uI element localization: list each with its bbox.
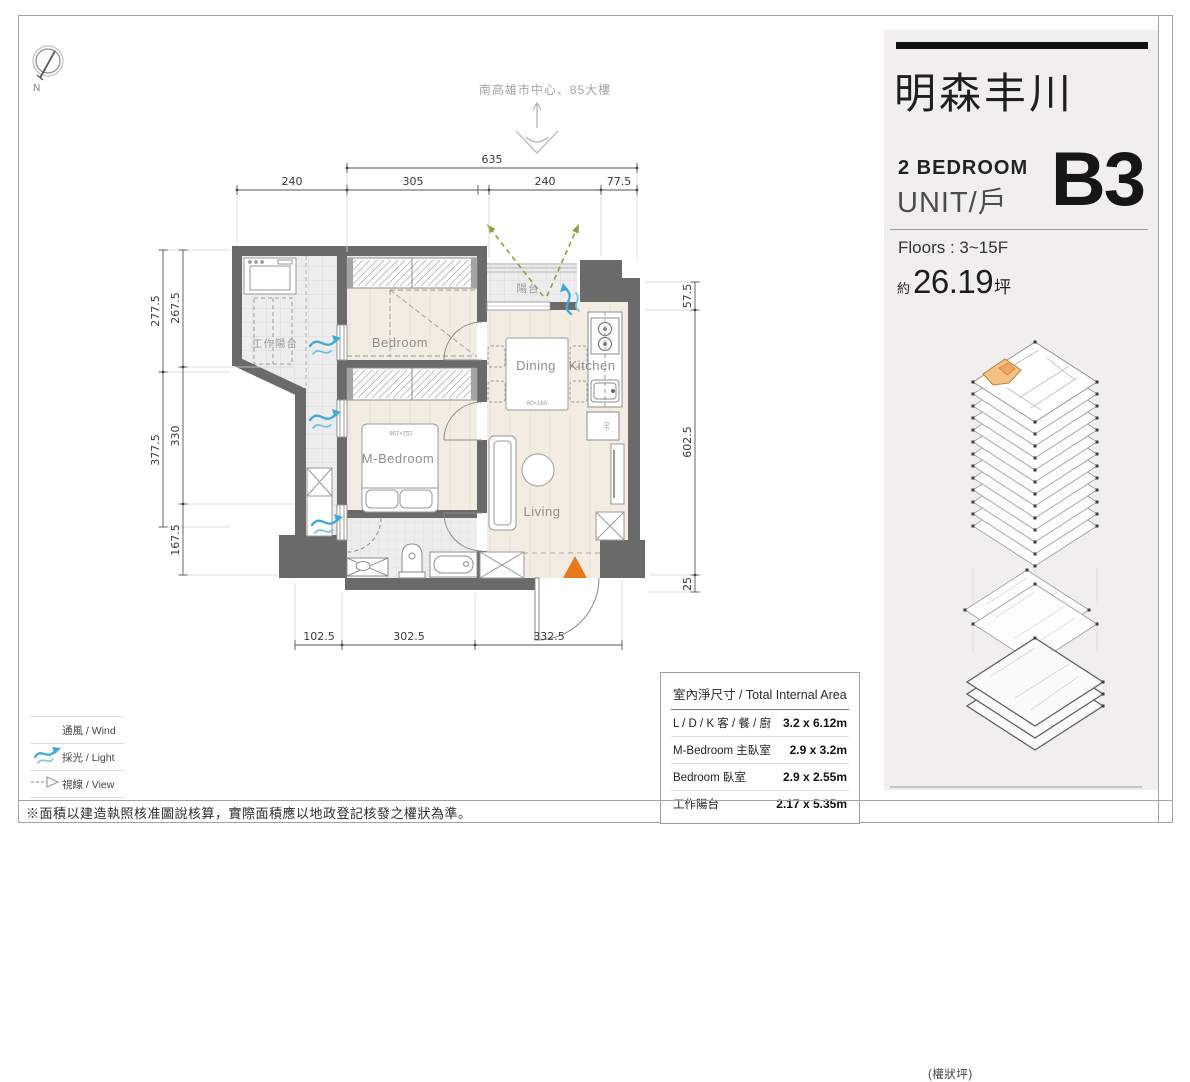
room-label-kitchen: Kitchen: [569, 358, 616, 373]
sofa: [489, 436, 516, 530]
sheet-panel-divider: [1158, 15, 1159, 822]
internal-area-table: 室內淨尺寸 / Total Internal Area L / D / K 客 …: [660, 672, 860, 824]
table-size-label: 80×160: [527, 401, 548, 407]
table-row: L / D / K 客 / 餐 / 廚 3.2 x 6.12m: [671, 710, 849, 737]
room-label-work-balcony: 工作陽台: [252, 337, 298, 350]
dim-bottom-2: 302.5: [393, 630, 425, 643]
area-table-title: 室內淨尺寸 / Total Internal Area: [671, 681, 849, 710]
kitchen-fixtures: [587, 312, 622, 440]
row-name: L / D / K 客 / 餐 / 廚: [673, 715, 771, 731]
room-label-balcony: 陽台: [517, 282, 540, 295]
area-value: 26.19: [913, 263, 993, 301]
area-note: (權狀坪): [928, 1066, 973, 1082]
sheet-footer-divider: [18, 800, 1172, 801]
dim-left-outer-2: 377.5: [149, 434, 162, 466]
table-row: M-Bedroom 主臥室 2.9 x 3.2m: [671, 737, 849, 764]
dim-bottom-3: 332.5: [533, 630, 565, 643]
wind-light-icon: [30, 740, 64, 768]
fridge-label: RF: [602, 422, 608, 430]
panel-bottom-line: [890, 786, 1142, 788]
title-accent-bar: [896, 42, 1148, 49]
panel-divider: [890, 229, 1148, 230]
unit-code: B3: [1051, 142, 1144, 218]
room-label-m-bedroom: M-Bedroom: [362, 451, 434, 466]
bed: [362, 424, 438, 512]
legend-label: 通風 / Wind: [62, 723, 116, 738]
row-size: 3.2 x 6.12m: [783, 716, 847, 730]
row-size: 2.9 x 2.55m: [783, 770, 847, 784]
building-stack-diagram: [950, 322, 1120, 792]
dim-top-3: 240: [535, 175, 556, 188]
row-name: 工作陽台: [673, 796, 719, 812]
table-row: 工作陽台 2.17 x 5.35m: [671, 791, 849, 817]
room-label-bedroom: Bedroom: [372, 335, 428, 350]
dim-top-2: 305: [403, 175, 424, 188]
view-icon-cell: [30, 775, 62, 794]
row-name: M-Bedroom 主臥室: [673, 742, 771, 758]
dim-top-total: 635: [482, 153, 503, 166]
bedroom-count: 2 BEDROOM: [898, 157, 1028, 180]
unit-label: UNIT/戶: [897, 179, 1008, 221]
area-unit: 坪: [994, 273, 1011, 298]
unit-area: 約 26.19 坪 (權狀坪): [897, 263, 1011, 301]
view-arrow-icon: [30, 775, 60, 789]
unit-info-panel: 明森丰川 2 BEDROOM UNIT/戶 B3 Floors : 3~15F …: [884, 30, 1158, 790]
bed-size-label: 152×196: [389, 429, 413, 435]
legend-row-wind: 通風 / Wind: [30, 716, 124, 743]
floors-range: Floors : 3~15F: [898, 238, 1008, 258]
row-name: Bedroom 臥室: [673, 769, 746, 785]
dim-bottom-1: 102.5: [303, 630, 335, 643]
direction-arrow-icon: [516, 103, 558, 153]
disclaimer-note: ※面積以建造執照核准圖說核算，實際面積應以地政登記核發之權狀為準。: [26, 803, 472, 822]
dim-top-1: 240: [282, 175, 303, 188]
legend: 通風 / Wind 採光 / Light 視線 / View: [30, 716, 124, 798]
room-label-dining: Dining: [516, 358, 556, 373]
dim-right-2: 602.5: [681, 426, 694, 458]
row-size: 2.9 x 3.2m: [790, 743, 847, 757]
legend-row-view: 視線 / View: [30, 770, 124, 798]
legend-label: 採光 / Light: [62, 750, 115, 765]
compass-icon: [33, 46, 63, 80]
legend-label: 視線 / View: [62, 777, 114, 792]
dim-left-outer-1: 277.5: [149, 295, 162, 327]
direction-annotation: 南高雄市中心、85大樓: [479, 82, 611, 97]
area-prefix: 約: [897, 278, 910, 297]
dim-left-inner-1: 267.5: [169, 292, 182, 324]
dim-right-3: 25: [681, 577, 694, 591]
dim-right-1: 57.5: [681, 284, 694, 309]
room-label-living: Living: [524, 504, 561, 519]
dim-top-4: 77.5: [607, 175, 632, 188]
project-title: 明森丰川: [894, 60, 1074, 121]
compass-north-label: N: [33, 83, 40, 94]
dim-left-inner-2: 330: [169, 426, 182, 447]
dim-left-inner-3: 167.5: [169, 524, 182, 556]
table-row: Bedroom 臥室 2.9 x 2.55m: [671, 764, 849, 791]
coffee-table: [522, 454, 554, 486]
